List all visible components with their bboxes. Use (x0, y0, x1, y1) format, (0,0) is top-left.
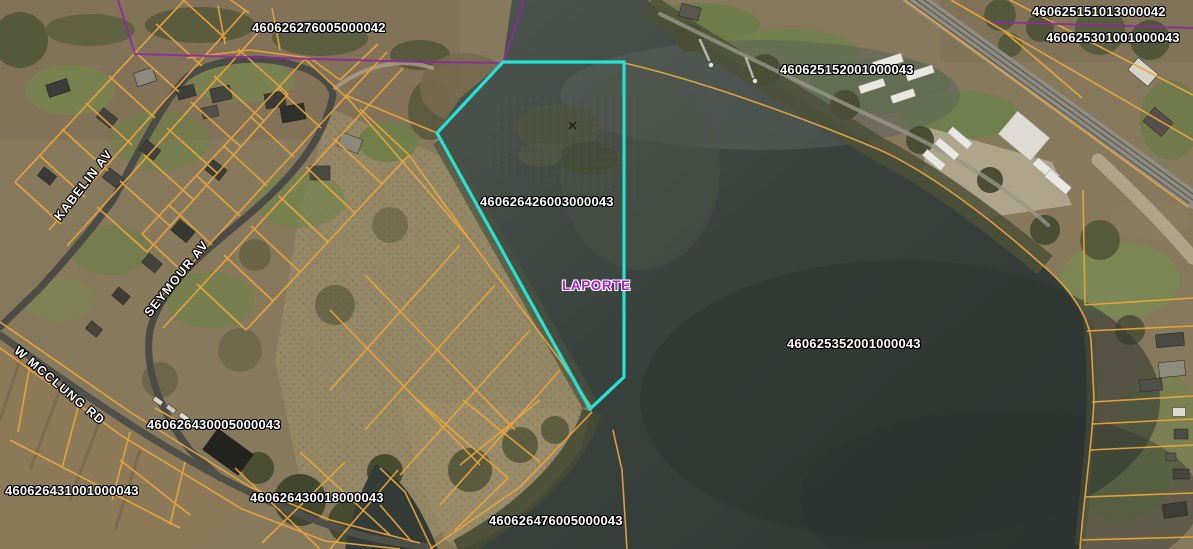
parcel-label: 460626430005000043 (147, 417, 281, 432)
map-viewport[interactable]: 460626276005000042 460625151013000042 46… (0, 0, 1193, 549)
parcel-label-selected: 460626426003000043 (480, 194, 614, 209)
place-label-laporte: LAPORTE (562, 278, 631, 293)
parcel-label: 460626476005000043 (489, 513, 623, 528)
parcel-label: 460626430018000043 (250, 490, 384, 505)
parcel-label: 460625301001000043 (1046, 30, 1180, 45)
parcel-label: 460625152001000043 (780, 62, 914, 77)
parcel-label: 460626431001000043 (5, 483, 139, 498)
parcel-label: 460625352001000043 (787, 336, 921, 351)
parcel-label: 460626276005000042 (252, 20, 386, 35)
parcel-label: 460625151013000042 (1032, 4, 1166, 19)
